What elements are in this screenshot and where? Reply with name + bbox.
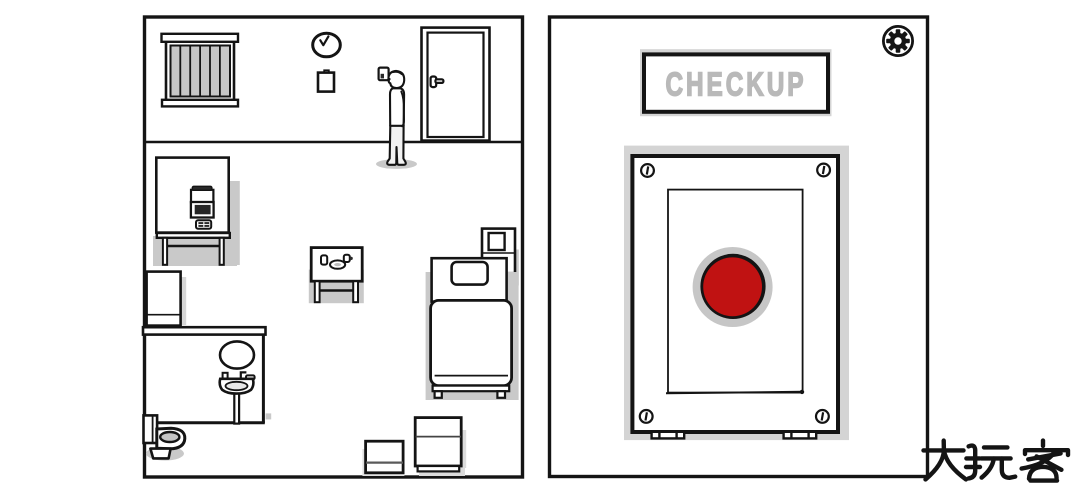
svg-text:CHECKUP: CHECKUP [666, 66, 807, 103]
